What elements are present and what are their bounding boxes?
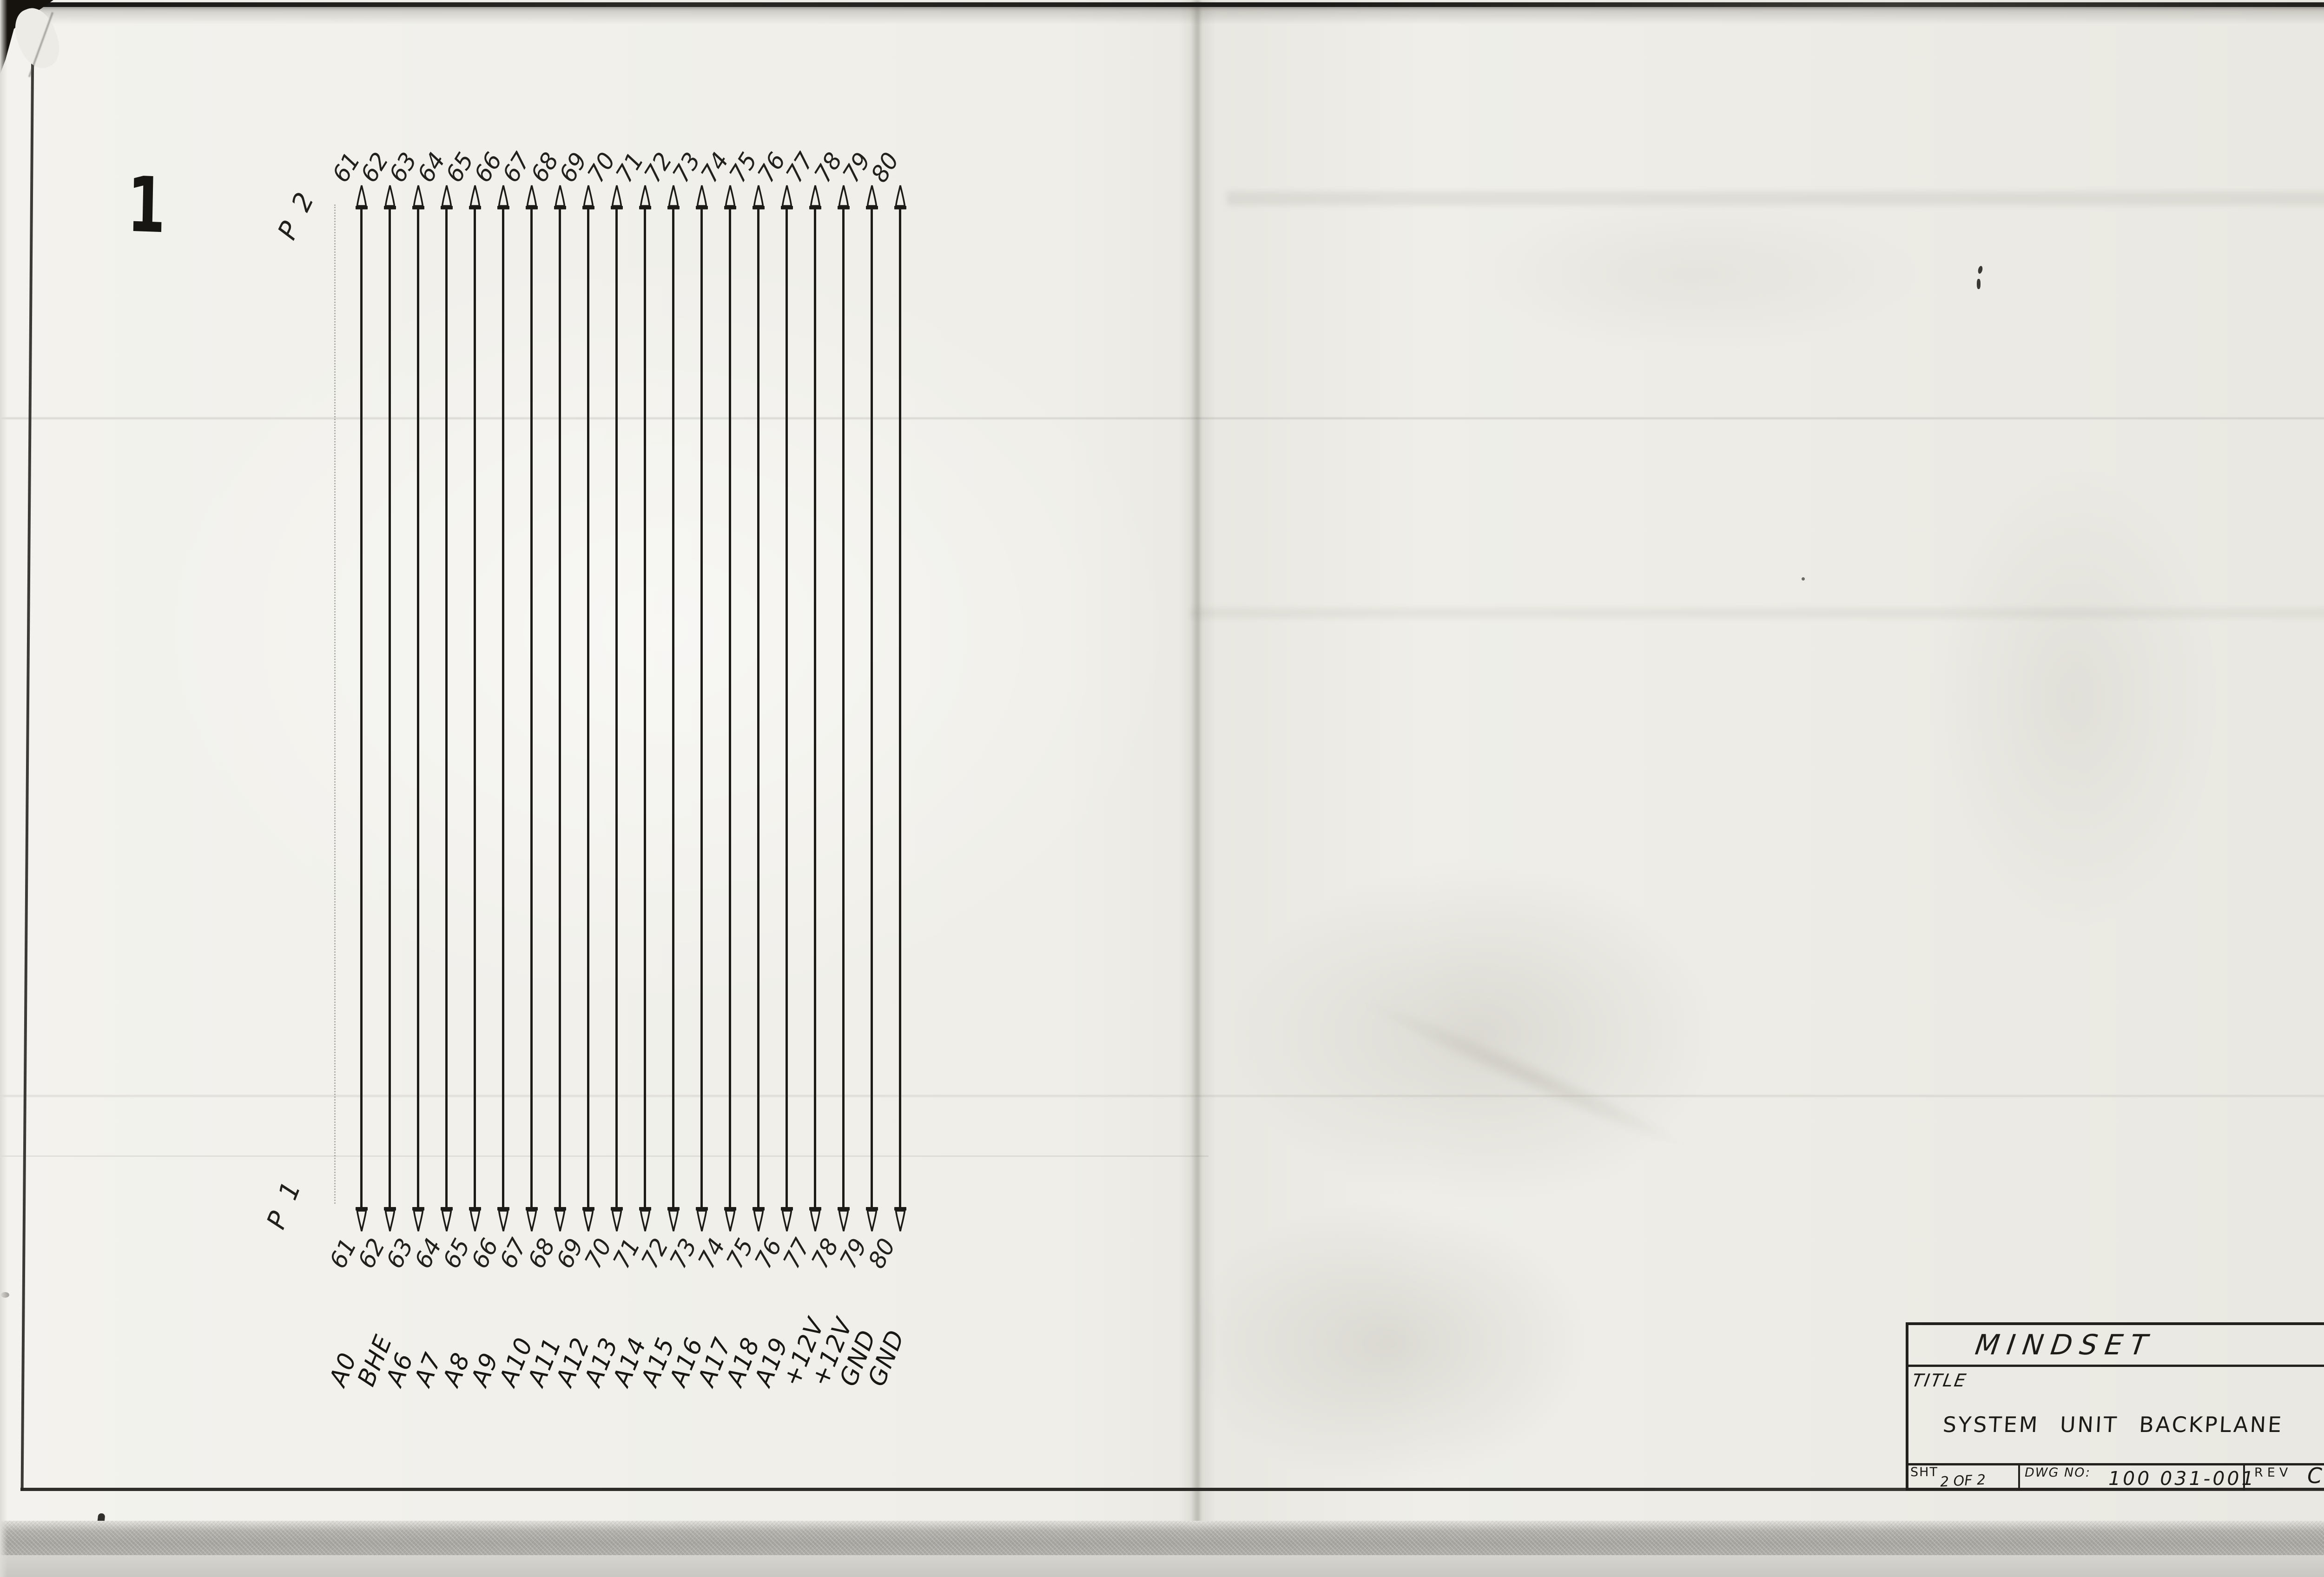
arrow-down-icon (383, 1205, 397, 1233)
arrow-down-wrap (553, 1205, 567, 1234)
rev-label: REV (2254, 1465, 2292, 1480)
arrow-up-icon (723, 184, 737, 212)
arrow-down-wrap (581, 1205, 595, 1234)
arrow-down-icon (355, 1205, 369, 1233)
arrow-down-icon (553, 1205, 567, 1233)
arrow-up-icon (496, 184, 510, 212)
arrow-down-icon (411, 1205, 425, 1233)
arrow-down-icon (780, 1205, 794, 1233)
arrow-down-wrap (411, 1205, 425, 1234)
arrow-down-wrap (837, 1205, 851, 1234)
arrow-up-icon (411, 184, 425, 212)
scanner-band-speckled (0, 1521, 2324, 1555)
sheet-value: 2 OF 2 (1940, 1471, 1986, 1490)
wire-line (587, 208, 589, 1208)
wire-line (502, 208, 504, 1208)
connector-wire-80: 8080GND (886, 0, 915, 1577)
arrow-up-icon (525, 184, 539, 212)
arrow-down-wrap (496, 1205, 510, 1234)
arrow-down-icon (723, 1205, 737, 1233)
arrow-up-icon (780, 184, 794, 212)
wire-line (729, 208, 731, 1208)
arrow-up-icon (752, 184, 766, 212)
arrow-up-icon (610, 184, 624, 212)
arrow-down-wrap (865, 1205, 879, 1234)
arrow-down-icon (581, 1205, 595, 1233)
arrow-down-icon (496, 1205, 510, 1233)
scanned-drawing-page: 1 P 2 P 1 6161A06262BHE6363A66464A76565A… (0, 0, 2324, 1577)
title-block-line (1906, 1322, 2324, 1325)
arrow-down-wrap (383, 1205, 397, 1234)
arrow-down-wrap (667, 1205, 680, 1234)
wire-line (417, 208, 419, 1208)
arrow-down-icon (752, 1205, 766, 1233)
arrow-down-icon (695, 1205, 709, 1233)
arrow-up-icon (468, 184, 482, 212)
dotted-guide-line (334, 205, 336, 1204)
title-label: TITLE (1910, 1370, 1969, 1391)
rev-value: C (2307, 1463, 2322, 1488)
arrow-down-icon (865, 1205, 879, 1233)
arrow-down-wrap (752, 1205, 766, 1234)
title-block-line (1906, 1322, 1908, 1491)
arrow-down-wrap (440, 1205, 454, 1234)
dwg-no-label: DWG NO: (2025, 1465, 2091, 1480)
wire-line (389, 208, 391, 1208)
wire-line (644, 208, 646, 1208)
arrow-down-wrap (355, 1205, 369, 1234)
company-name: MINDSET (1973, 1329, 2157, 1361)
sheet-label: SHT (1910, 1465, 1938, 1479)
arrow-down-wrap (610, 1205, 624, 1234)
wire-line (786, 208, 788, 1208)
arrow-up-icon (581, 184, 595, 212)
wire-line (757, 208, 759, 1208)
wire-line (445, 208, 448, 1208)
paper-edge-left (0, 0, 7, 1577)
connector-wire-64: 6464A7 (432, 0, 461, 1577)
dwg-no-value: 100 031-001 (2108, 1467, 2256, 1490)
title-block: MINDSET TITLE SYSTEM UNIT BACKPLANE SHT … (1906, 1322, 2324, 1491)
connector-wire-65: 6565A8 (461, 0, 489, 1577)
arrow-up-icon (553, 184, 567, 212)
wire-line (530, 208, 533, 1208)
arrow-down-icon (525, 1205, 539, 1233)
scanner-band-light (0, 1555, 2324, 1577)
wire-line (842, 208, 845, 1208)
arrow-down-wrap (723, 1205, 737, 1234)
wire-line (672, 208, 674, 1208)
arrow-up-icon (865, 184, 879, 212)
arrow-down-wrap (893, 1205, 907, 1234)
title-block-line (2018, 1463, 2020, 1491)
wire-line (700, 208, 703, 1208)
connector-wire-63: 6363A6 (404, 0, 433, 1577)
arrow-down-wrap (780, 1205, 794, 1234)
arrow-down-icon (440, 1205, 454, 1233)
wire-line (615, 208, 618, 1208)
drawing-title: SYSTEM UNIT BACKPLANE (1942, 1412, 2284, 1437)
arrow-down-wrap (695, 1205, 709, 1234)
arrow-down-icon (638, 1205, 652, 1233)
arrow-down-icon (667, 1205, 680, 1233)
connector-label-p2: P 2 (274, 186, 320, 244)
arrow-up-icon (695, 184, 709, 212)
arrow-up-icon (355, 184, 369, 212)
wire-line (814, 208, 816, 1208)
arrow-down-wrap (468, 1205, 482, 1234)
arrow-up-icon (667, 184, 680, 212)
arrow-up-icon (383, 184, 397, 212)
arrow-up-icon (837, 184, 851, 212)
arrow-down-icon (468, 1205, 482, 1233)
connector-wire-62: 6262BHE (376, 0, 404, 1577)
signal-label: A0 (325, 1349, 361, 1390)
wire-line (899, 208, 901, 1208)
margin-mark-1: 1 (126, 168, 166, 244)
arrow-down-icon (837, 1205, 851, 1233)
arrow-up-icon (440, 184, 454, 212)
arrow-up-icon (638, 184, 652, 212)
title-block-line (1906, 1365, 2324, 1367)
arrow-down-icon (610, 1205, 624, 1233)
arrow-up-icon (808, 184, 822, 212)
wire-line (360, 208, 363, 1208)
arrow-up-icon (893, 184, 907, 212)
connector-label-p1: P 1 (263, 1175, 307, 1233)
arrow-down-icon (808, 1205, 822, 1233)
wire-line (871, 208, 873, 1208)
wire-line (559, 208, 561, 1208)
wire-line (474, 208, 476, 1208)
arrow-down-icon (893, 1205, 907, 1233)
arrow-down-wrap (638, 1205, 652, 1234)
arrow-down-wrap (808, 1205, 822, 1234)
arrow-down-wrap (525, 1205, 539, 1234)
